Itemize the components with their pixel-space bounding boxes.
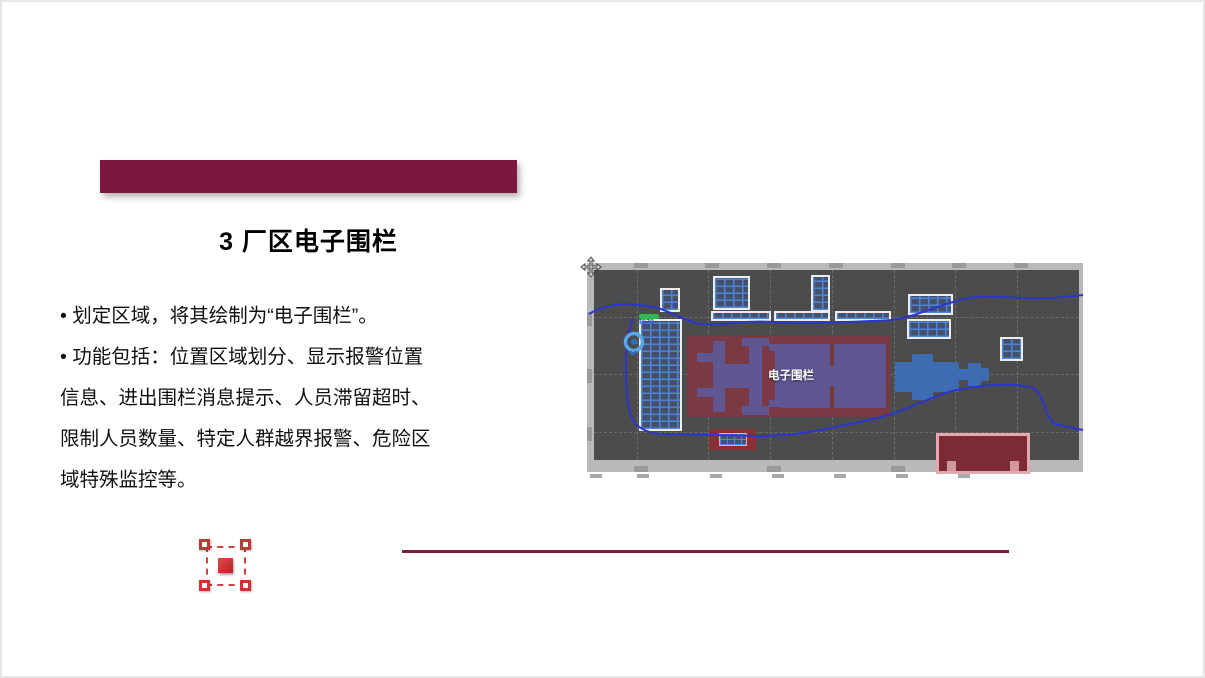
selection-handle[interactable] [199,539,210,550]
equipment-grid-bar [774,311,830,321]
frame-notch [705,263,719,268]
equipment-grid [908,294,953,315]
equipment-grid-bar [835,311,891,321]
electronic-fence-zone: 电子围栏 [687,336,890,417]
frame-tick [772,474,784,478]
map-gridline [637,270,638,460]
selection-handle[interactable] [240,539,251,550]
fence-selection-icon[interactable] [199,539,251,591]
map-gridline [1017,270,1018,460]
frame-notch [1014,263,1028,268]
selection-center-square[interactable] [218,558,233,573]
frame-tick [896,474,908,478]
equipment-grid-bar [711,311,771,321]
footer-divider-line [402,550,1009,553]
building-pillar [1010,461,1019,471]
frame-notch [952,263,966,268]
move-cursor-icon [580,256,602,278]
frame-notch [829,263,843,268]
alarm-zone-box [709,429,756,450]
frame-notch [891,466,905,472]
alarm-zone-grid [719,433,747,446]
bullet-line: 信息、进出围栏消息提示、人员滞留超时、 [60,378,528,419]
selection-handle[interactable] [199,580,210,591]
bullet-line: • 划定区域，将其绘制为“电子围栏”。 [60,296,528,337]
equipment-grid-large [713,276,750,310]
frame-notch [634,466,648,472]
slide-canvas: 3 厂区电子围栏 • 划定区域，将其绘制为“电子围栏”。 • 功能包括：位置区域… [0,0,1205,678]
building-pillar [947,461,956,471]
frame-tick [590,474,602,478]
page-title[interactable]: 3 厂区电子围栏 [100,222,517,258]
location-pin-icon [622,330,646,360]
blue-machine-silhouette [895,353,989,401]
frame-tick [958,474,970,478]
frame-notch [587,369,592,383]
bullet-line: • 功能包括：位置区域划分、显示报警位置 [60,337,528,378]
equipment-grid [907,319,951,339]
frame-notch [587,312,592,326]
equipment-grid-small [660,288,680,312]
frame-tick [710,474,722,478]
frame-tick [834,474,846,478]
pink-building-outline [936,433,1030,474]
equipment-grid-column [811,275,830,312]
frame-notch [587,427,592,441]
factory-map-content: 电子围栏 [594,270,1079,460]
bullet-line: 限制人员数量、特定人群越界报警、危险区 [60,419,528,460]
frame-notch [767,466,781,472]
frame-notch [634,263,648,268]
selection-handle[interactable] [240,580,251,591]
tag-label: T670 [638,319,654,326]
bullet-text-block[interactable]: • 划定区域，将其绘制为“电子围栏”。 • 功能包括：位置区域划分、显示报警位置… [60,296,528,501]
factory-map-image[interactable]: 电子围栏 [587,263,1083,472]
equipment-grid [1000,337,1023,361]
frame-notch [891,263,905,268]
frame-tick [637,474,649,478]
title-banner-bar[interactable] [100,160,517,193]
fence-label: 电子围栏 [751,367,831,383]
frame-notch [767,263,781,268]
bullet-line: 域特殊监控等。 [60,460,528,501]
